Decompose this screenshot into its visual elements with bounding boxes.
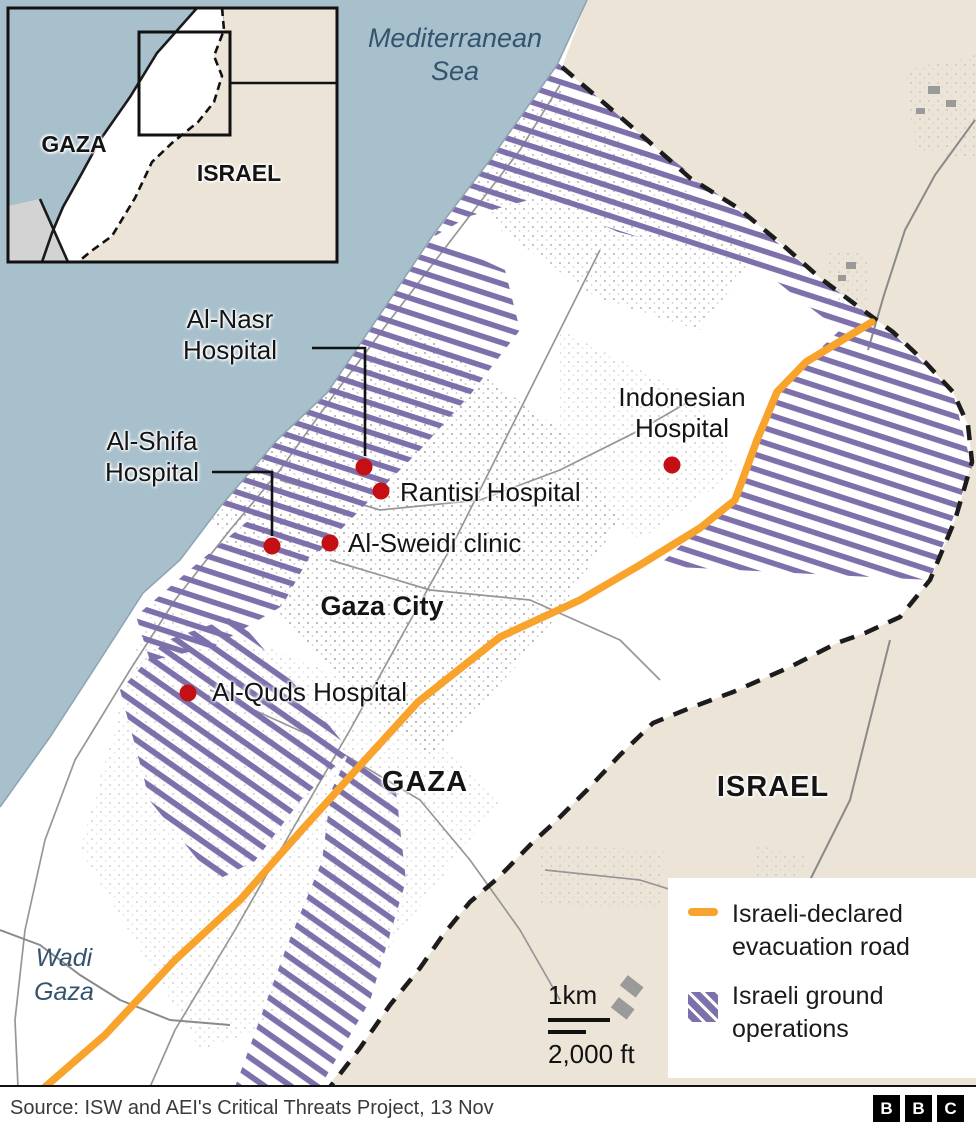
- al-nasr-marker: [356, 459, 373, 476]
- legend: Israeli-declared evacuation road Israeli…: [668, 878, 976, 1078]
- scale-bar: 1km 2,000 ft: [548, 980, 668, 1070]
- wadi-gaza-label: Wadi Gaza: [16, 941, 112, 1009]
- al-quds-label: Al-Quds Hospital: [212, 677, 407, 708]
- ground-operations-swatch: [688, 992, 718, 1022]
- gaza-region-label: GAZA: [358, 766, 492, 799]
- rantisi-label: Rantisi Hospital: [400, 477, 581, 508]
- scale-km-label: 1km: [548, 980, 668, 1011]
- bbc-gaza-map: Mediterranean Sea GAZA ISRAEL Al-Nasr Ho…: [0, 0, 976, 1130]
- legend-road-item: Israeli-declared evacuation road: [688, 898, 976, 964]
- indonesian-marker: [664, 457, 681, 474]
- scale-ft-label: 2,000 ft: [548, 1039, 668, 1070]
- source-bar: Source: ISW and AEI's Critical Threats P…: [0, 1085, 976, 1130]
- sea-label: Mediterranean Sea: [330, 22, 580, 88]
- al-shifa-marker: [264, 538, 281, 555]
- legend-ground-label: Israeli ground operations: [732, 980, 883, 1046]
- indonesian-label: Indonesian Hospital: [596, 382, 768, 444]
- source-text: Source: ISW and AEI's Critical Threats P…: [10, 1097, 494, 1120]
- bbc-logo-c: C: [937, 1095, 964, 1122]
- scale-km-line: [548, 1018, 610, 1022]
- evacuation-road-swatch: [688, 908, 718, 916]
- al-sweidi-label: Al-Sweidi clinic: [348, 528, 521, 559]
- legend-road-label: Israeli-declared evacuation road: [732, 898, 910, 964]
- al-sweidi-marker: [322, 535, 339, 552]
- bbc-logo: B B C: [873, 1095, 964, 1122]
- legend-ground-item: Israeli ground operations: [688, 980, 976, 1046]
- bbc-logo-b1: B: [873, 1095, 900, 1122]
- israel-region-label: ISRAEL: [704, 771, 842, 804]
- inset-gaza-label: GAZA: [18, 131, 130, 158]
- al-shifa-label: Al-Shifa Hospital: [73, 426, 231, 488]
- rantisi-marker: [373, 483, 390, 500]
- gaza-city-label: Gaza City: [298, 591, 466, 622]
- scale-ft-line: [548, 1030, 586, 1034]
- inset-israel-label: ISRAEL: [178, 160, 300, 187]
- al-quds-marker: [180, 685, 197, 702]
- bbc-logo-b2: B: [905, 1095, 932, 1122]
- al-nasr-label: Al-Nasr Hospital: [150, 304, 310, 366]
